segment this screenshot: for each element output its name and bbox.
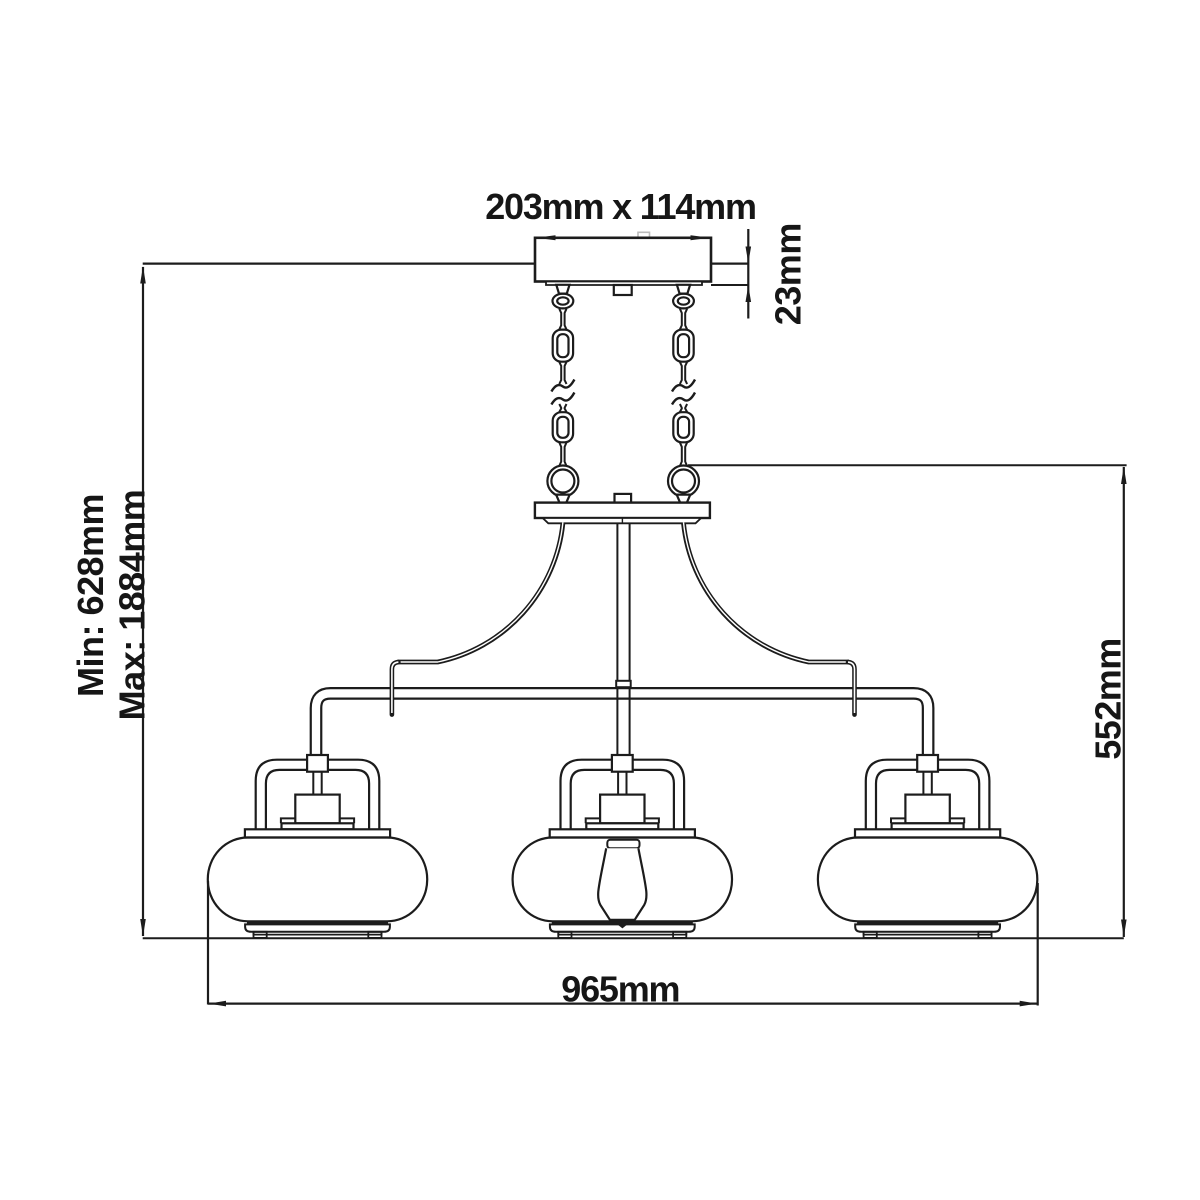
svg-text:23mm: 23mm	[768, 223, 809, 325]
svg-text:203mm x 114mm: 203mm x 114mm	[485, 186, 756, 227]
svg-text:965mm: 965mm	[561, 968, 679, 1009]
svg-text:Min: 628mm: Min: 628mm	[70, 494, 111, 697]
svg-text:Max: 1884mm: Max: 1884mm	[112, 490, 153, 721]
svg-text:552mm: 552mm	[1088, 638, 1129, 760]
